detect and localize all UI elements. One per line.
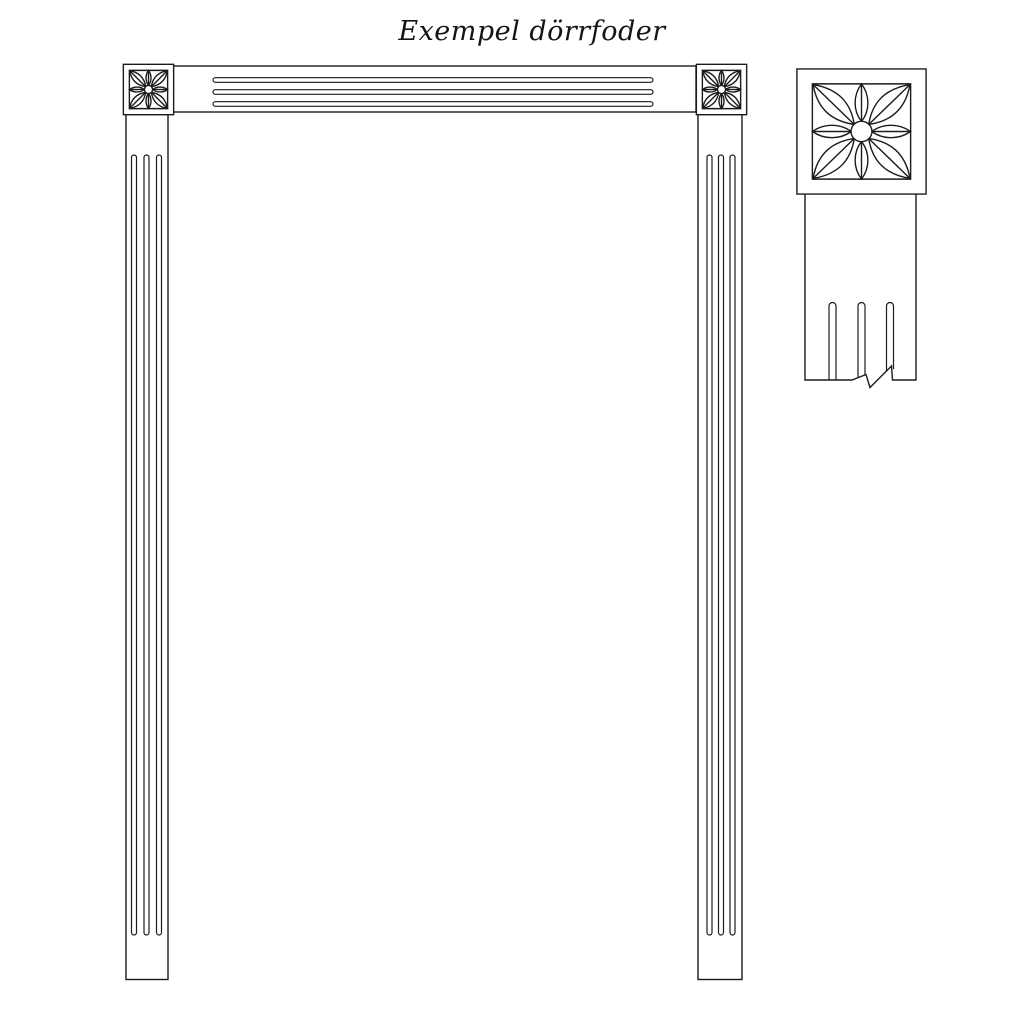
head-casing [173, 66, 696, 112]
corner-rosette-top-right [696, 64, 746, 114]
detail-view [797, 69, 926, 388]
head-casing-flutes [213, 78, 653, 107]
corner-rosette-top-left [123, 64, 173, 114]
side-casing-right [698, 115, 742, 980]
side-casing-left-flutes [132, 155, 162, 935]
detail-corner-rosette [797, 69, 926, 194]
side-casing-right-flutes [707, 155, 735, 935]
side-casing-left [126, 115, 168, 980]
detail-casing-outline [805, 194, 916, 388]
door-casing-drawing [0, 0, 1024, 1024]
detail-casing-flutes [829, 303, 894, 380]
drawing-canvas: Exempel dörrfoder [0, 0, 1024, 1024]
